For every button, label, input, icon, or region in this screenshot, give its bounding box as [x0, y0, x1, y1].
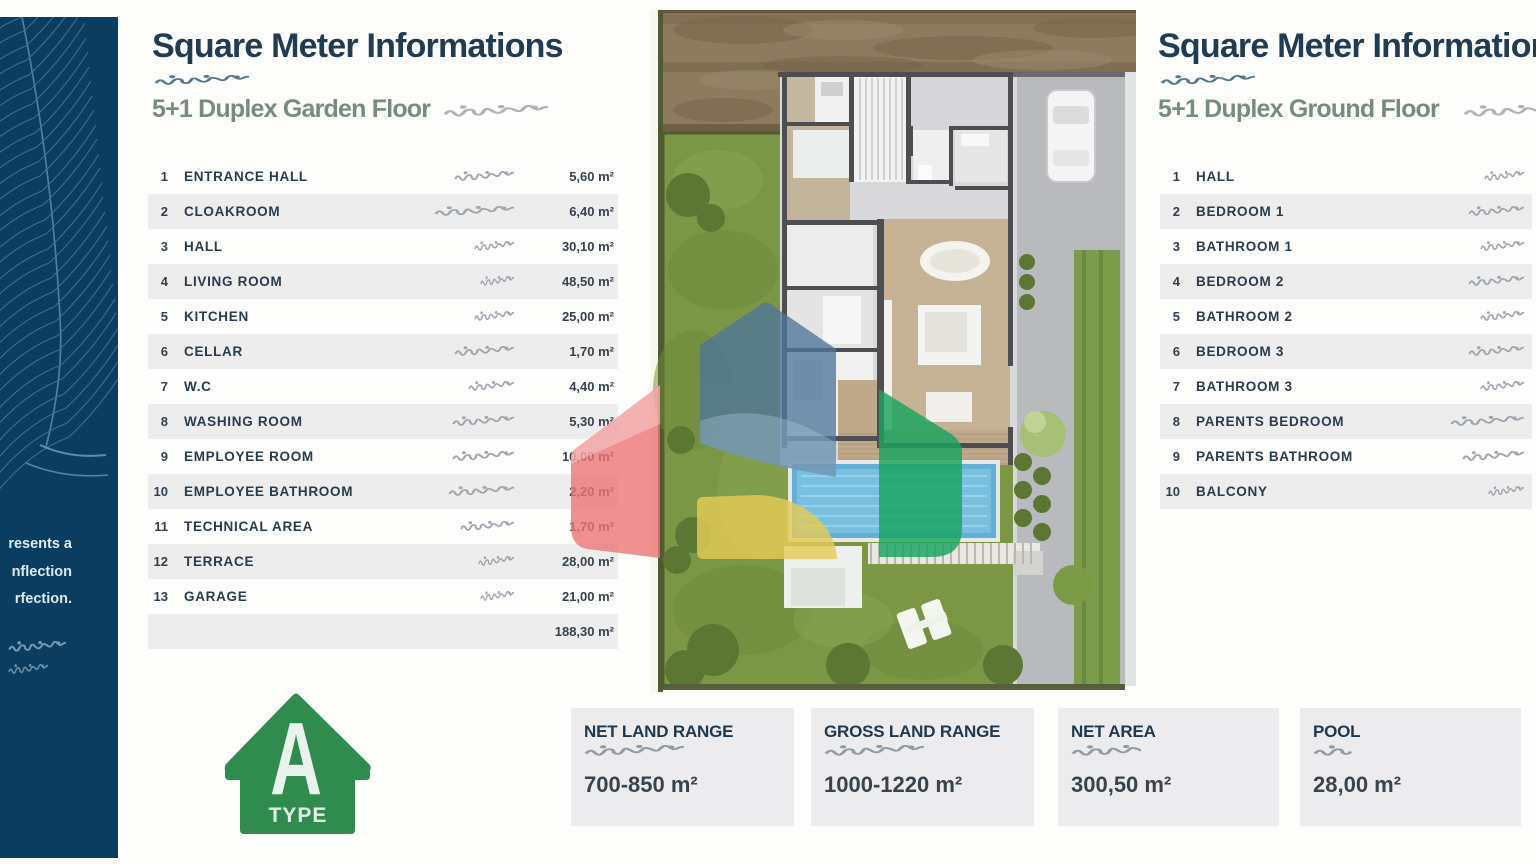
svg-text:TYPE: TYPE: [269, 804, 328, 827]
svg-text:A: A: [270, 701, 322, 816]
